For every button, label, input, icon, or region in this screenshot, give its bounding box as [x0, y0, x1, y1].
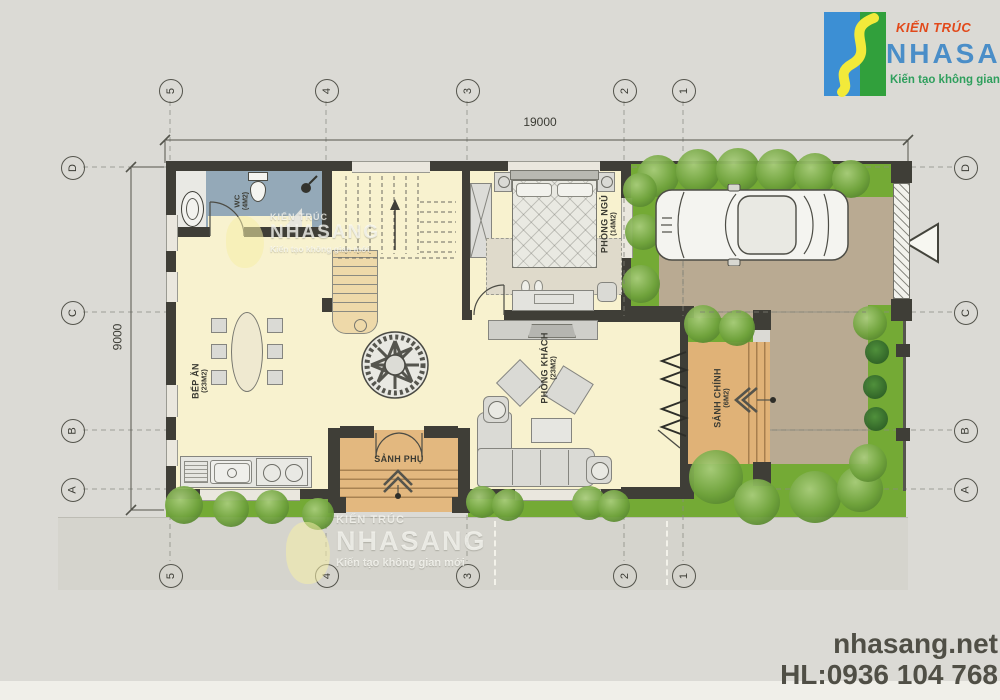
bathroom-south-wall — [176, 227, 210, 237]
tree-icon — [213, 491, 249, 527]
room-label-main-hall: SẢNH CHÍNH (6M2) — [713, 368, 732, 428]
window — [166, 440, 178, 466]
footer-website: nhasang.net — [780, 628, 998, 659]
logo-brand: NHASANG — [886, 38, 1000, 70]
kitchen-faucet — [227, 468, 237, 478]
grid-row-a-left: A — [61, 478, 85, 502]
main-porch-post — [753, 310, 771, 330]
dining-chair — [267, 318, 283, 333]
watermark-brand: NHASANG — [270, 222, 394, 244]
dimension-width-label: 19000 — [510, 115, 570, 129]
plant-icon — [591, 462, 609, 480]
window — [166, 385, 178, 417]
logo: KIẾN TRÚC NHASANG Kiến tạo không gian mớ… — [820, 8, 1000, 102]
side-porch-north-wall — [340, 426, 374, 438]
grid-row-b-left: B — [61, 419, 85, 443]
tree-icon — [719, 310, 755, 346]
grid-col-5-top: 5 — [159, 79, 183, 103]
bedside-lamp — [601, 176, 613, 188]
bathroom-basin-bowl — [186, 198, 199, 220]
toilet-tank — [248, 172, 268, 181]
tree-icon — [165, 486, 203, 524]
main-porch-steps — [748, 342, 770, 464]
side-porch-north-wall — [424, 426, 458, 438]
tree-icon — [849, 444, 887, 482]
grid-row-c-left: C — [61, 301, 85, 325]
room-area: (6M2) — [723, 388, 732, 408]
room-label-wc: WC (4M2) — [234, 192, 251, 210]
bed-pillow — [557, 183, 593, 197]
gate-ramp — [893, 183, 910, 299]
fence-post — [896, 428, 910, 441]
floor-plan-page: 19000 9000 — [0, 0, 1000, 700]
grid-row-d-left: D — [61, 156, 85, 180]
grid-col-2-bottom: 2 — [613, 564, 637, 588]
watermark-kicker: KIẾN TRÚC — [336, 514, 502, 526]
tree-icon — [622, 265, 660, 303]
footer-hotline: HL:0936 104 768 — [780, 659, 998, 690]
room-area: (14M2) — [610, 212, 619, 236]
logo-tagline: Kiến tạo không gian mới — [890, 74, 1000, 86]
watermark-tagline: Kiến tạo không gian mới — [336, 557, 502, 569]
room-area: (4M2) — [242, 192, 250, 210]
room-label-bedroom: PHÒNG NGỦ (14M2) — [600, 195, 619, 253]
room-area: (23M2) — [550, 356, 559, 380]
sofa-seat-line — [568, 450, 569, 485]
watermark-kicker: KIẾN TRÚC — [270, 212, 394, 222]
watermark-s-shape — [226, 216, 264, 268]
grid-col-3-top: 3 — [456, 79, 480, 103]
side-porch-east-wall — [458, 428, 470, 492]
tree-icon — [684, 305, 722, 343]
room-name: WC — [234, 194, 243, 207]
side-porch-west-wall — [328, 428, 340, 492]
grid-col-5-bottom: 5 — [159, 564, 183, 588]
stove-burner — [263, 464, 281, 482]
footer: nhasang.net HL:0936 104 768 — [780, 628, 998, 690]
sofa-seat-line — [540, 450, 541, 485]
grid-col-4-top: 4 — [315, 79, 339, 103]
bedroom-stool — [597, 282, 617, 302]
watermark-tagline: Kiến tạo không gian mới — [270, 244, 394, 254]
stove-burner — [285, 464, 303, 482]
dining-chair — [211, 318, 227, 333]
bush-icon — [864, 407, 888, 431]
bedroom-desk-inset — [534, 294, 574, 304]
grid-row-a-right: A — [954, 478, 978, 502]
bed-pillow — [516, 183, 552, 197]
grid-row-d-right: D — [954, 156, 978, 180]
gate-post — [891, 299, 912, 321]
grid-col-1-bottom: 1 — [672, 564, 696, 588]
window — [166, 272, 178, 302]
room-label-side-hall: SẢNH PHỤ — [374, 454, 423, 464]
dimension-height-label: 9000 — [110, 324, 124, 351]
room-label-living: PHÒNG KHÁCH (23M2) — [540, 332, 559, 403]
logo-kicker: KIẾN TRÚC — [896, 20, 971, 35]
bush-icon — [865, 340, 889, 364]
side-porch-steps — [340, 464, 458, 498]
room-label-kitchen: BẾP ĂN (23M2) — [191, 363, 210, 399]
floor-medallion — [360, 330, 430, 400]
dining-chair — [211, 370, 227, 385]
grid-row-c-right: C — [954, 301, 978, 325]
dining-chair — [267, 370, 283, 385]
grid-col-1-top: 1 — [672, 79, 696, 103]
entrance-arrow-icon — [906, 224, 938, 262]
window — [166, 215, 178, 251]
watermark-brand: NHASANG — [336, 526, 502, 557]
watermark: KIẾN TRÚC NHASANG Kiến tạo không gian mớ… — [282, 514, 502, 569]
bed-headboard — [510, 170, 599, 180]
bedroom-west-wall — [462, 171, 470, 312]
floor-living-east — [621, 322, 680, 487]
sofa-seat-line — [512, 450, 513, 485]
tree-icon — [734, 479, 780, 525]
bush-icon — [863, 375, 887, 399]
room-area: (23M2) — [201, 369, 210, 393]
sofa-long-section — [477, 448, 595, 487]
logo-s-icon — [822, 10, 888, 98]
bedroom-south-wall-post — [462, 310, 472, 320]
tree-icon — [853, 306, 887, 340]
car-icon — [652, 184, 852, 266]
fence-post — [896, 344, 910, 357]
bedside-lamp — [498, 176, 510, 188]
watermark: KIẾN TRÚC NHASANG Kiến tạo không gian mớ… — [224, 212, 394, 254]
dining-table — [231, 312, 263, 392]
dining-chair — [267, 344, 283, 359]
tree-icon — [789, 471, 841, 523]
kitchen-drainboard — [184, 461, 208, 483]
plant-icon — [488, 401, 506, 419]
grid-col-2-top: 2 — [613, 79, 637, 103]
grid-row-b-right: B — [954, 419, 978, 443]
dining-chair — [211, 344, 227, 359]
gate-post — [891, 161, 912, 183]
window — [352, 161, 430, 173]
stairs-treads — [332, 250, 378, 322]
tree-icon — [598, 490, 630, 522]
coffee-table — [531, 418, 572, 443]
watermark-s-shape — [286, 522, 330, 584]
